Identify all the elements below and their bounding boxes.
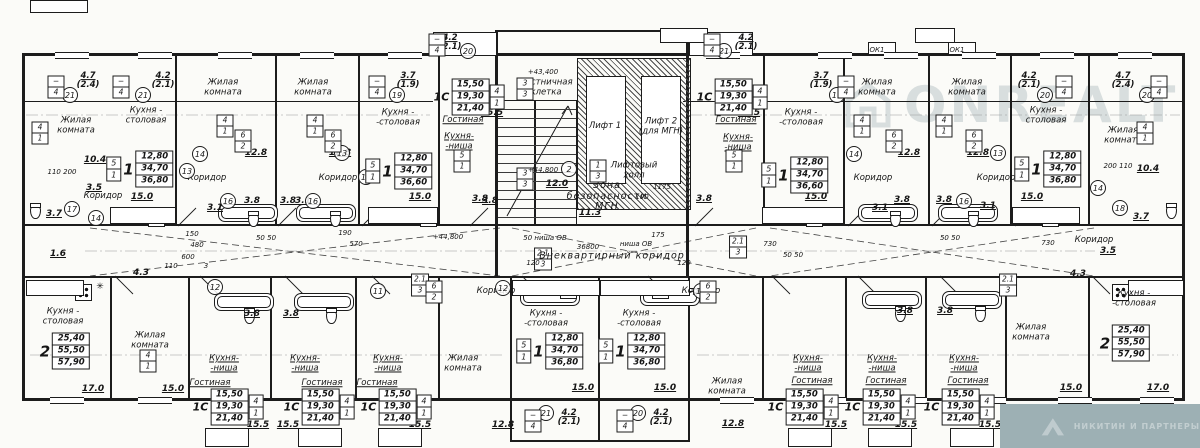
- window-opening: [962, 52, 996, 59]
- tag-box: 62: [966, 130, 983, 153]
- wall: [175, 56, 177, 226]
- wall: [925, 278, 927, 400]
- tag-box: −4: [617, 410, 634, 433]
- kitchen-counter: [368, 207, 438, 224]
- dimension-label: 730: [763, 240, 776, 248]
- kitchen-counter: [1012, 207, 1080, 224]
- area-label: 3.8: [937, 306, 953, 316]
- apartment-stamp: 225,4055,5057,90: [1098, 325, 1150, 362]
- balcony-label: 4.2(2.1): [558, 409, 581, 427]
- dimension-label: 190: [338, 229, 351, 237]
- apartment-stamp: 1С15,5019,3021,4041: [432, 79, 505, 116]
- room-label: Коридор: [84, 192, 123, 202]
- circle-marker: 19: [389, 87, 405, 103]
- wall: [1088, 56, 1090, 226]
- window-opening: [138, 52, 172, 59]
- toilet-icon: [326, 310, 337, 324]
- room-label: Коридор: [319, 174, 358, 184]
- circle-marker: 20: [460, 43, 476, 59]
- tag-box: 2.13: [999, 274, 1017, 297]
- wall: [22, 53, 25, 401]
- dimension-label: 200 110: [1104, 162, 1133, 170]
- balcony-box: [915, 28, 955, 43]
- area-label: 3.7: [1133, 212, 1149, 222]
- area-label: 3.8: [244, 309, 260, 319]
- area-label: 3.8: [936, 195, 952, 205]
- dimension-label: 150: [185, 230, 198, 238]
- room-label: Гостиная: [866, 377, 907, 387]
- tag-box: 51: [454, 150, 471, 173]
- area-label: 12.8: [722, 419, 744, 429]
- area-label: 11.3: [579, 208, 601, 218]
- area-label: 3.5: [1100, 246, 1116, 256]
- room-label: Кухня --столовая: [779, 108, 823, 127]
- area-label: 4.3: [133, 268, 149, 278]
- window-opening: [218, 52, 252, 59]
- room-label: Кухня--ниша: [793, 354, 823, 373]
- wall: [598, 400, 600, 442]
- apartment-stamp: 1С15,5019,3021,4041: [695, 79, 768, 116]
- tag-box: 62: [700, 281, 717, 304]
- apartment-stamp: 51112,8034,7036,80: [516, 333, 583, 370]
- dimension-label: 110 200: [48, 168, 77, 176]
- watermark-agency: НИКИТИН И ПАРТНЕРЫ: [1000, 404, 1200, 448]
- apartment-stamp: 1С15,5019,3021,4041: [282, 389, 355, 426]
- tag-box: 2.13: [729, 236, 747, 259]
- apartment-stamp: 1С15,5019,3021,4041: [191, 389, 264, 426]
- area-label: 3.8: [244, 196, 260, 206]
- dimension-label: 3: [204, 262, 208, 270]
- balcony-box: [868, 428, 912, 447]
- window-opening: [300, 52, 334, 59]
- dimension-label: 570: [349, 240, 362, 248]
- tag-box: 62: [426, 281, 443, 304]
- window-opening: [138, 397, 172, 404]
- room-label: Гостиная: [357, 379, 398, 389]
- area-label: 15.0: [162, 384, 184, 394]
- room-label: Жилаякомната: [444, 354, 482, 373]
- room-label: Жилаякомната: [131, 331, 169, 350]
- area-label: 15.0: [572, 383, 594, 393]
- tag-box: −4: [838, 76, 855, 99]
- wall: [358, 56, 360, 226]
- wall: [688, 400, 690, 442]
- balcony-label: 4.2(2.1): [152, 72, 175, 90]
- room-label: Кухня--ниша: [373, 354, 403, 373]
- apartment-stamp: 51112,8034,7036,60: [365, 153, 432, 190]
- tag-box: 13: [590, 160, 607, 183]
- area-label: 3.1: [872, 203, 888, 213]
- tag-box: −4: [704, 34, 721, 57]
- area-label: 10.4: [1137, 164, 1159, 174]
- circle-marker: 16: [305, 193, 321, 209]
- circle-marker: 2: [561, 161, 577, 177]
- area-label: 15.0: [1021, 192, 1043, 202]
- area-label: 1.6: [50, 249, 66, 259]
- window-opening: [884, 52, 918, 59]
- toilet-icon: [30, 205, 41, 219]
- tag-box: −4: [369, 76, 386, 99]
- kitchen-counter: [762, 207, 844, 224]
- wall: [762, 278, 764, 400]
- circle-marker: 13: [990, 145, 1006, 161]
- tag-box: −4: [48, 76, 65, 99]
- apartment-stamp: 51112,8034,7036,60: [761, 157, 828, 194]
- dimension-label: 110: [164, 262, 177, 270]
- kitchen-counter: [26, 280, 84, 296]
- watermark-agency-text: НИКИТИН И ПАРТНЕРЫ: [1074, 422, 1200, 431]
- kitchen-counter: [110, 207, 176, 224]
- dimension-label: +44,800: [528, 166, 558, 174]
- area-label: 15.0: [654, 383, 676, 393]
- tag-box: 41: [854, 115, 871, 138]
- toilet-icon: [1166, 205, 1177, 219]
- floor-plan: ONREALT ✳✳✳✳✳✳✳✳ЖилаякомнатаКухня -столо…: [0, 0, 1200, 448]
- area-label: 3.8: [280, 196, 296, 206]
- dimension-label: ОК1: [870, 46, 885, 54]
- tag-box: −4: [1151, 76, 1168, 99]
- room-label: Жилаякомната: [708, 377, 746, 396]
- tag-box: 41: [140, 350, 157, 373]
- circle-marker: 16: [220, 193, 236, 209]
- corridor-title: Внеквартирный коридор: [539, 252, 685, 263]
- circle-marker: 13: [179, 163, 195, 179]
- tag-box: −4: [113, 76, 130, 99]
- circle-marker: 20: [1037, 87, 1053, 103]
- dimension-label: 480: [190, 241, 203, 249]
- area-label: 3.5: [86, 183, 102, 193]
- window-opening: [1118, 52, 1152, 59]
- room-label: Жилаякомната: [204, 78, 242, 97]
- bathtub-icon: [858, 204, 918, 222]
- tag-box: 41: [307, 115, 324, 138]
- tag-box: 41: [1137, 122, 1154, 145]
- balcony-label: 4.2(2.1): [1018, 72, 1041, 90]
- room-label: Кухня--ниша: [290, 354, 320, 373]
- room-label: Жилаякомната: [1012, 323, 1050, 342]
- room-label: Гостиная: [948, 377, 989, 387]
- room-label: Коридор: [1075, 236, 1114, 246]
- dimension-label: 50 50: [940, 234, 960, 242]
- window-opening: [818, 52, 852, 59]
- apartment-stamp: 51112,8034,7036,80: [106, 151, 173, 188]
- area-label: 3.8: [894, 195, 910, 205]
- agency-logo-icon: [1040, 413, 1066, 439]
- wall: [22, 101, 433, 102]
- tag-box: 51: [726, 150, 743, 173]
- room-label: Кухня --столовая: [376, 108, 420, 127]
- dimension-label: 50 ниша ОВ: [523, 234, 567, 242]
- apartment-stamp: 1С15,5019,3021,4041: [843, 389, 916, 426]
- circle-marker: 21: [135, 87, 151, 103]
- tag-box: −4: [525, 410, 542, 433]
- room-label: Гостиная: [302, 379, 343, 389]
- window-opening: [50, 397, 84, 404]
- area-label: 3.8: [696, 194, 712, 204]
- wall: [1182, 53, 1185, 401]
- tag-box: 41: [32, 122, 49, 145]
- room-label: Лифт 1: [589, 122, 621, 132]
- area-label: 3.8: [897, 306, 913, 316]
- bathtub-icon: [296, 204, 356, 222]
- room-label: Кухня --столовая: [1112, 289, 1156, 308]
- circle-marker: 14: [192, 146, 208, 162]
- dimension-label: 50 50: [783, 251, 803, 259]
- dimension-label: 1175: [653, 183, 671, 191]
- area-label: 4.3: [1070, 269, 1086, 279]
- area-label: 12.0: [546, 179, 568, 189]
- area-label: 15.0: [131, 192, 153, 202]
- room-label: Жилаякомната: [948, 78, 986, 97]
- apartment-stamp: 51112,8034,7036,80: [1014, 151, 1081, 188]
- balcony-label: 3.7(1.9): [810, 72, 833, 90]
- circle-marker: 14: [88, 210, 104, 226]
- tag-box: 62: [325, 130, 342, 153]
- balcony-box: [30, 0, 88, 13]
- balcony-box: [660, 28, 708, 43]
- wall: [928, 56, 930, 226]
- room-label: Лифтовыйхолл: [611, 161, 658, 180]
- balcony-label: 4.2(2.1): [650, 409, 673, 427]
- wall: [1088, 278, 1090, 400]
- room-label: Кухня --столовая: [617, 309, 661, 328]
- dimension-label: ниша ОВ: [620, 240, 652, 248]
- circle-marker: 11: [370, 283, 386, 299]
- dimension-label: 100: [635, 193, 648, 201]
- balcony-box: [378, 428, 422, 447]
- room-label: Кухня--ниша: [867, 354, 897, 373]
- area-label: 3.8: [482, 196, 498, 206]
- area-label: 15.0: [805, 192, 827, 202]
- window-opening: [55, 52, 89, 59]
- area-label: 3.7: [46, 209, 62, 219]
- area-label: 15.0: [1060, 383, 1082, 393]
- balcony-box: [298, 428, 342, 447]
- room-label: Гостиная: [792, 377, 833, 387]
- room-label: Кухня -столовая: [126, 106, 167, 125]
- room-label: Коридор: [977, 174, 1016, 184]
- room-label: Кухня --столовая: [524, 309, 568, 328]
- room-label: Жилаякомната: [294, 78, 332, 97]
- room-label: Кухня--ниша: [949, 354, 979, 373]
- tag-box: 41: [936, 115, 953, 138]
- area-label: 17.0: [82, 384, 104, 394]
- window-opening: [1140, 397, 1174, 404]
- dimension-label: 730: [1041, 239, 1054, 247]
- circle-marker: 16: [956, 193, 972, 209]
- apartment-stamp: 1С15,5019,3021,4041: [766, 389, 839, 426]
- window-opening: [720, 397, 754, 404]
- circle-marker: 18: [1112, 200, 1128, 216]
- bathtub-icon: [862, 291, 922, 309]
- apartment-stamp: 225,4055,5057,90: [38, 333, 90, 370]
- room-label: Кухня -столовая: [1026, 106, 1067, 125]
- room-label: Жилаякомната: [57, 116, 95, 135]
- dimension-label: 120: [526, 259, 539, 267]
- circle-marker: 14: [846, 146, 862, 162]
- balcony-box: [950, 428, 994, 447]
- room-label: Кухня -столовая: [43, 307, 84, 326]
- room-label: Лифт 2(для МГН): [639, 117, 683, 136]
- tag-box: −4: [1056, 76, 1073, 99]
- balcony-box: [788, 428, 832, 447]
- window-opening: [388, 52, 422, 59]
- toilet-icon: [975, 308, 986, 322]
- tag-box: 62: [886, 130, 903, 153]
- tag-box: 41: [217, 115, 234, 138]
- room-label: Жилаякомната: [858, 78, 896, 97]
- tag-box: −4: [429, 34, 446, 57]
- balcony-label: 4.2(2.1): [735, 34, 758, 52]
- dimension-label: ОК1: [950, 46, 965, 54]
- window-opening: [1040, 52, 1074, 59]
- kitchen-counter: [600, 280, 690, 296]
- tag-box: 33: [517, 78, 534, 101]
- wall: [110, 278, 112, 400]
- room-label: Кухня--ниша: [209, 354, 239, 373]
- dimension-label: 175: [651, 231, 664, 239]
- apartment-stamp: 1С15,5019,3021,4041: [359, 389, 432, 426]
- area-label: 3.1: [980, 201, 996, 211]
- area-label: 15.0: [409, 192, 431, 202]
- balcony-label: 4.7(2.4): [77, 72, 100, 90]
- circle-marker: 12: [207, 279, 223, 295]
- circle-marker: 17: [64, 201, 80, 217]
- wall: [845, 278, 847, 400]
- wall: [1010, 56, 1012, 226]
- area-label: 10.4: [84, 155, 106, 165]
- circle-marker: 12: [495, 280, 511, 296]
- room-label: Гостиная: [190, 379, 231, 389]
- area-label: 12.8: [492, 420, 514, 430]
- room-label: Коридор: [854, 174, 893, 184]
- balcony-box: [205, 428, 249, 447]
- vent-symbol: ✳: [96, 282, 104, 292]
- dimension-label: 600: [181, 253, 194, 261]
- window-opening: [1058, 397, 1092, 404]
- tag-box: 62: [235, 130, 252, 153]
- apartment-stamp: 1С15,5019,3021,4041: [922, 389, 995, 426]
- dimension-label: 50 50: [256, 234, 276, 242]
- apartment-stamp: 51112,8034,7036,80: [598, 333, 665, 370]
- wall: [275, 56, 277, 226]
- dimension-label: +43,400: [528, 68, 558, 76]
- balcony-label: 4.7(2.4): [1112, 72, 1135, 90]
- area-label: 3.8: [283, 309, 299, 319]
- area-label: 17.0: [1147, 383, 1169, 393]
- room-label: Гостиная: [443, 116, 484, 126]
- circle-marker: 14: [1090, 180, 1106, 196]
- wall: [510, 440, 690, 442]
- bathtub-icon: [294, 293, 354, 311]
- dimension-label: +44,800: [433, 233, 463, 241]
- kitchen-counter: [512, 280, 600, 296]
